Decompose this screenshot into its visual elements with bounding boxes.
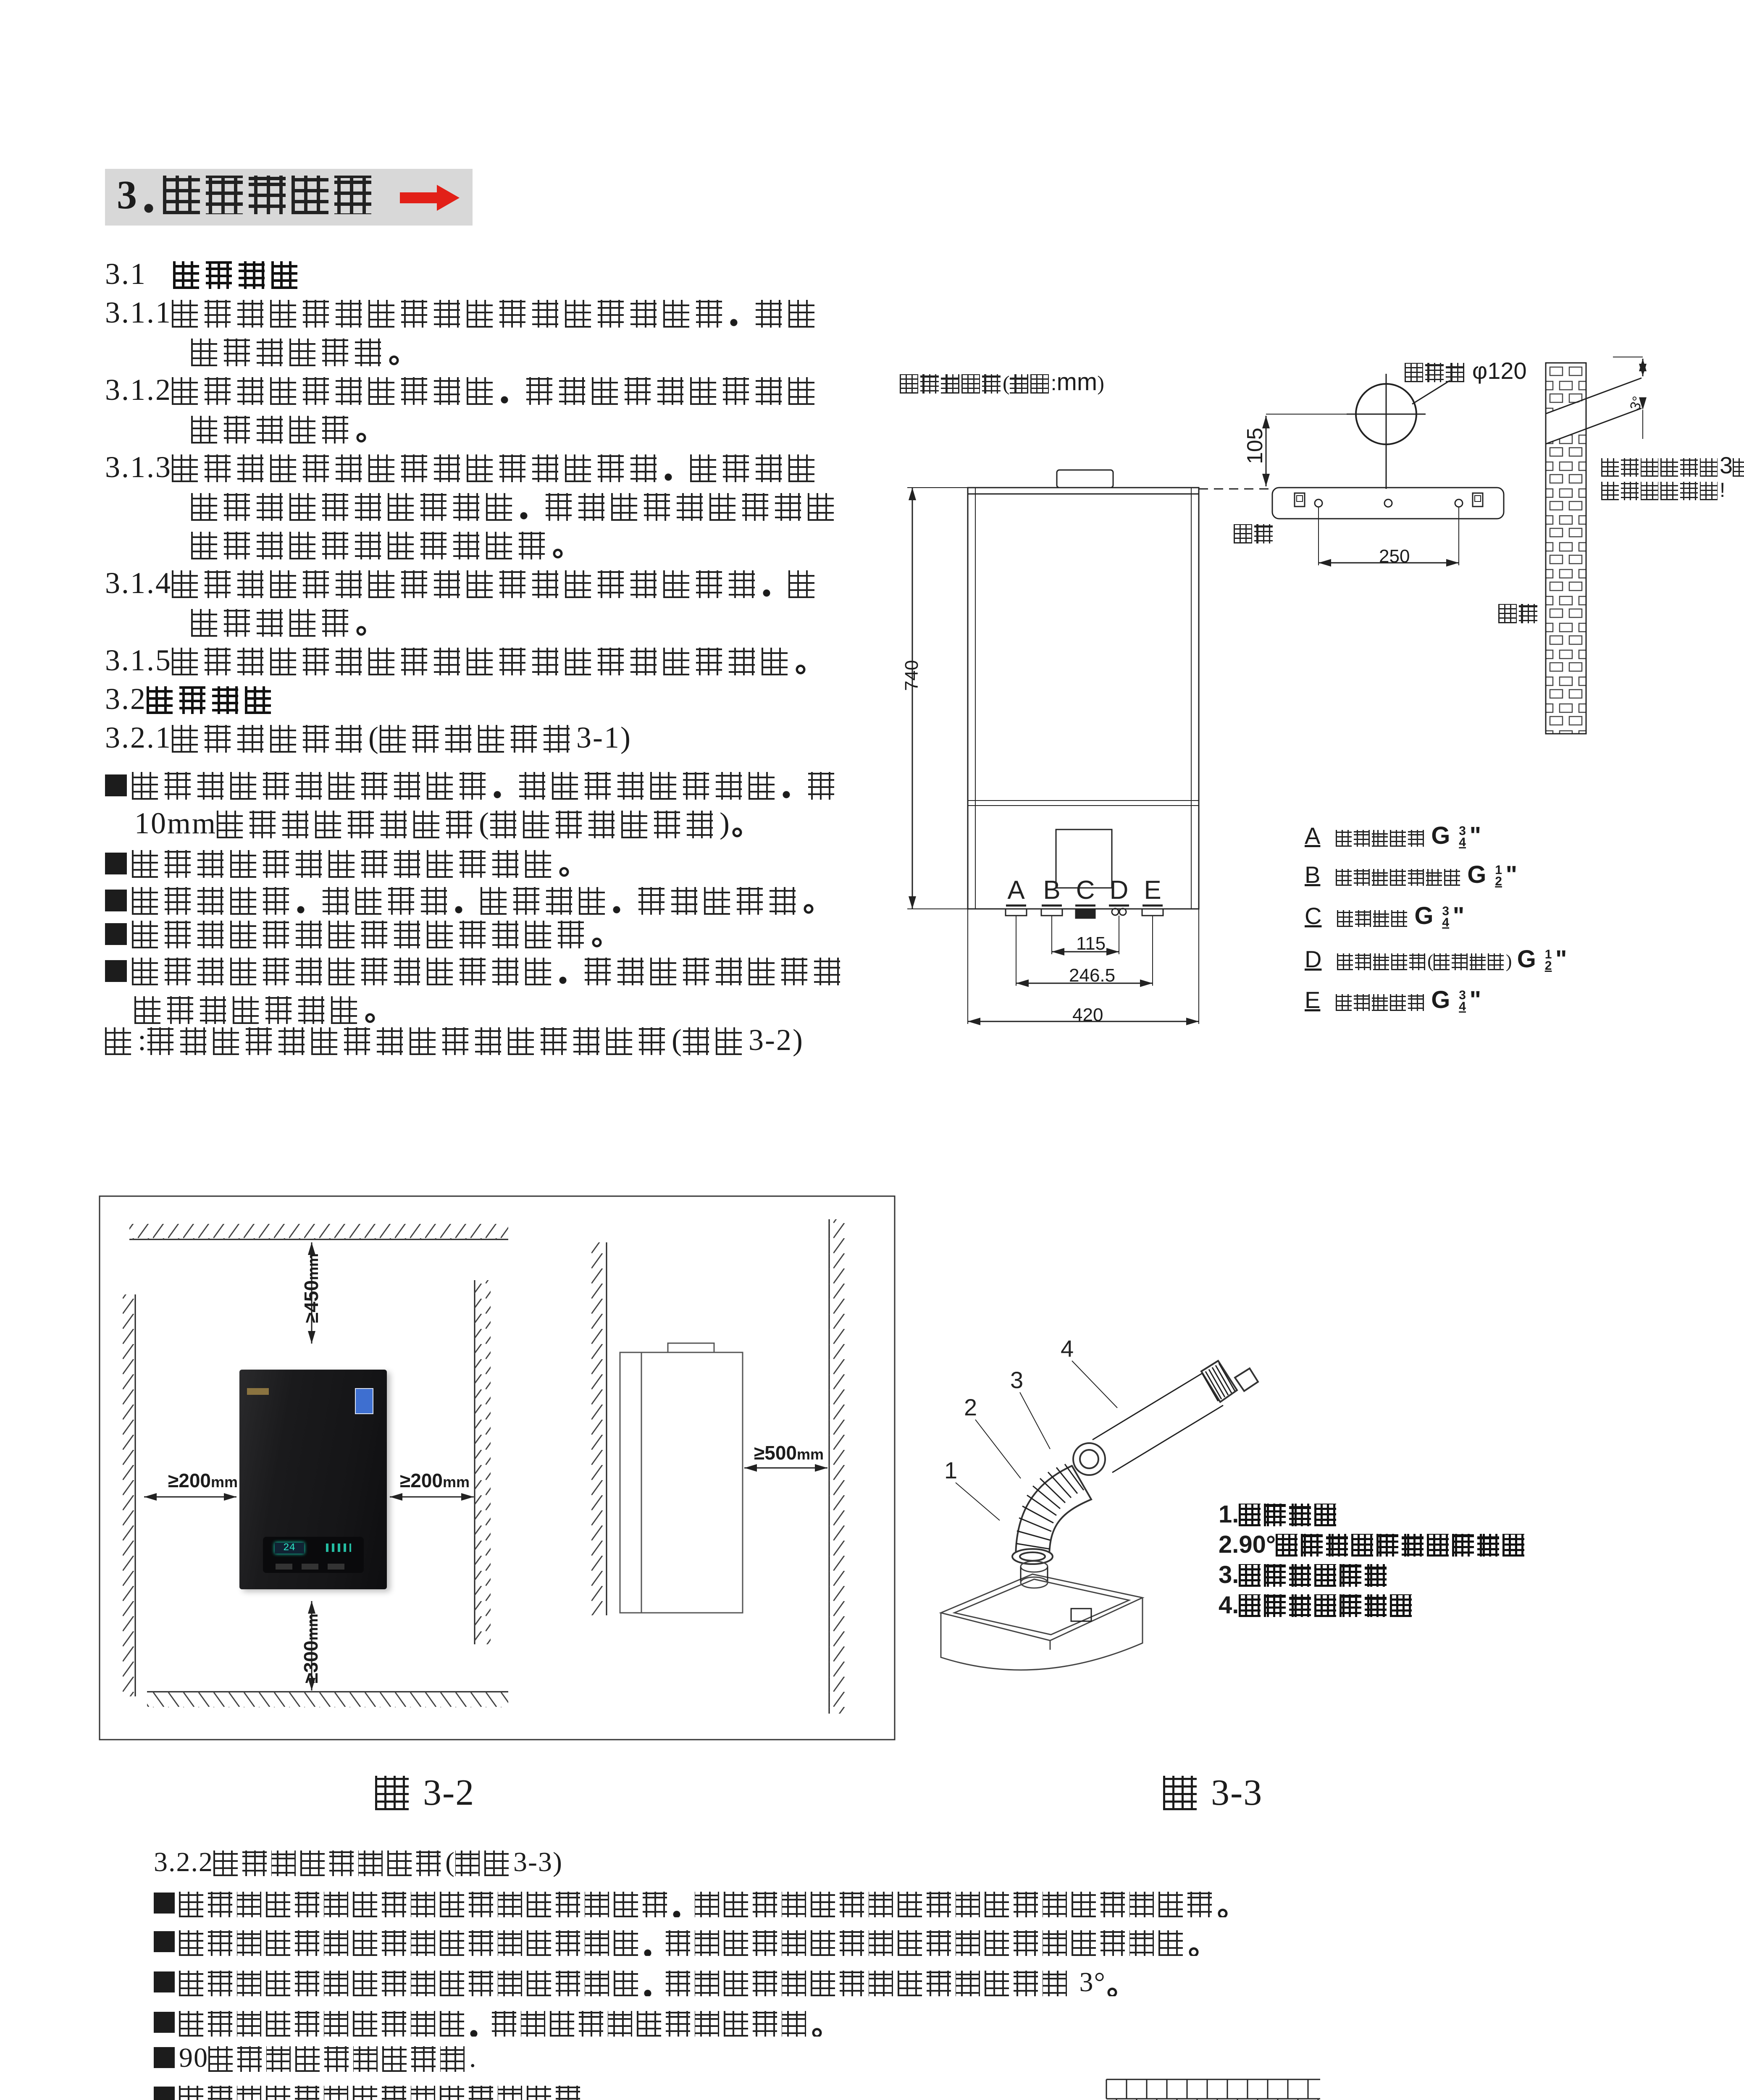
svg-text:A: A [1007,876,1025,905]
svg-text:D: D [1110,876,1129,905]
svg-text:1: 1 [944,1457,957,1483]
svg-text:C: C [1076,876,1095,905]
svg-text:B: B [1043,876,1060,905]
svg-text:E: E [1144,876,1161,905]
svg-text:2: 2 [964,1394,977,1420]
svg-text:4: 4 [1061,1335,1074,1362]
svg-text:3: 3 [1010,1367,1023,1393]
